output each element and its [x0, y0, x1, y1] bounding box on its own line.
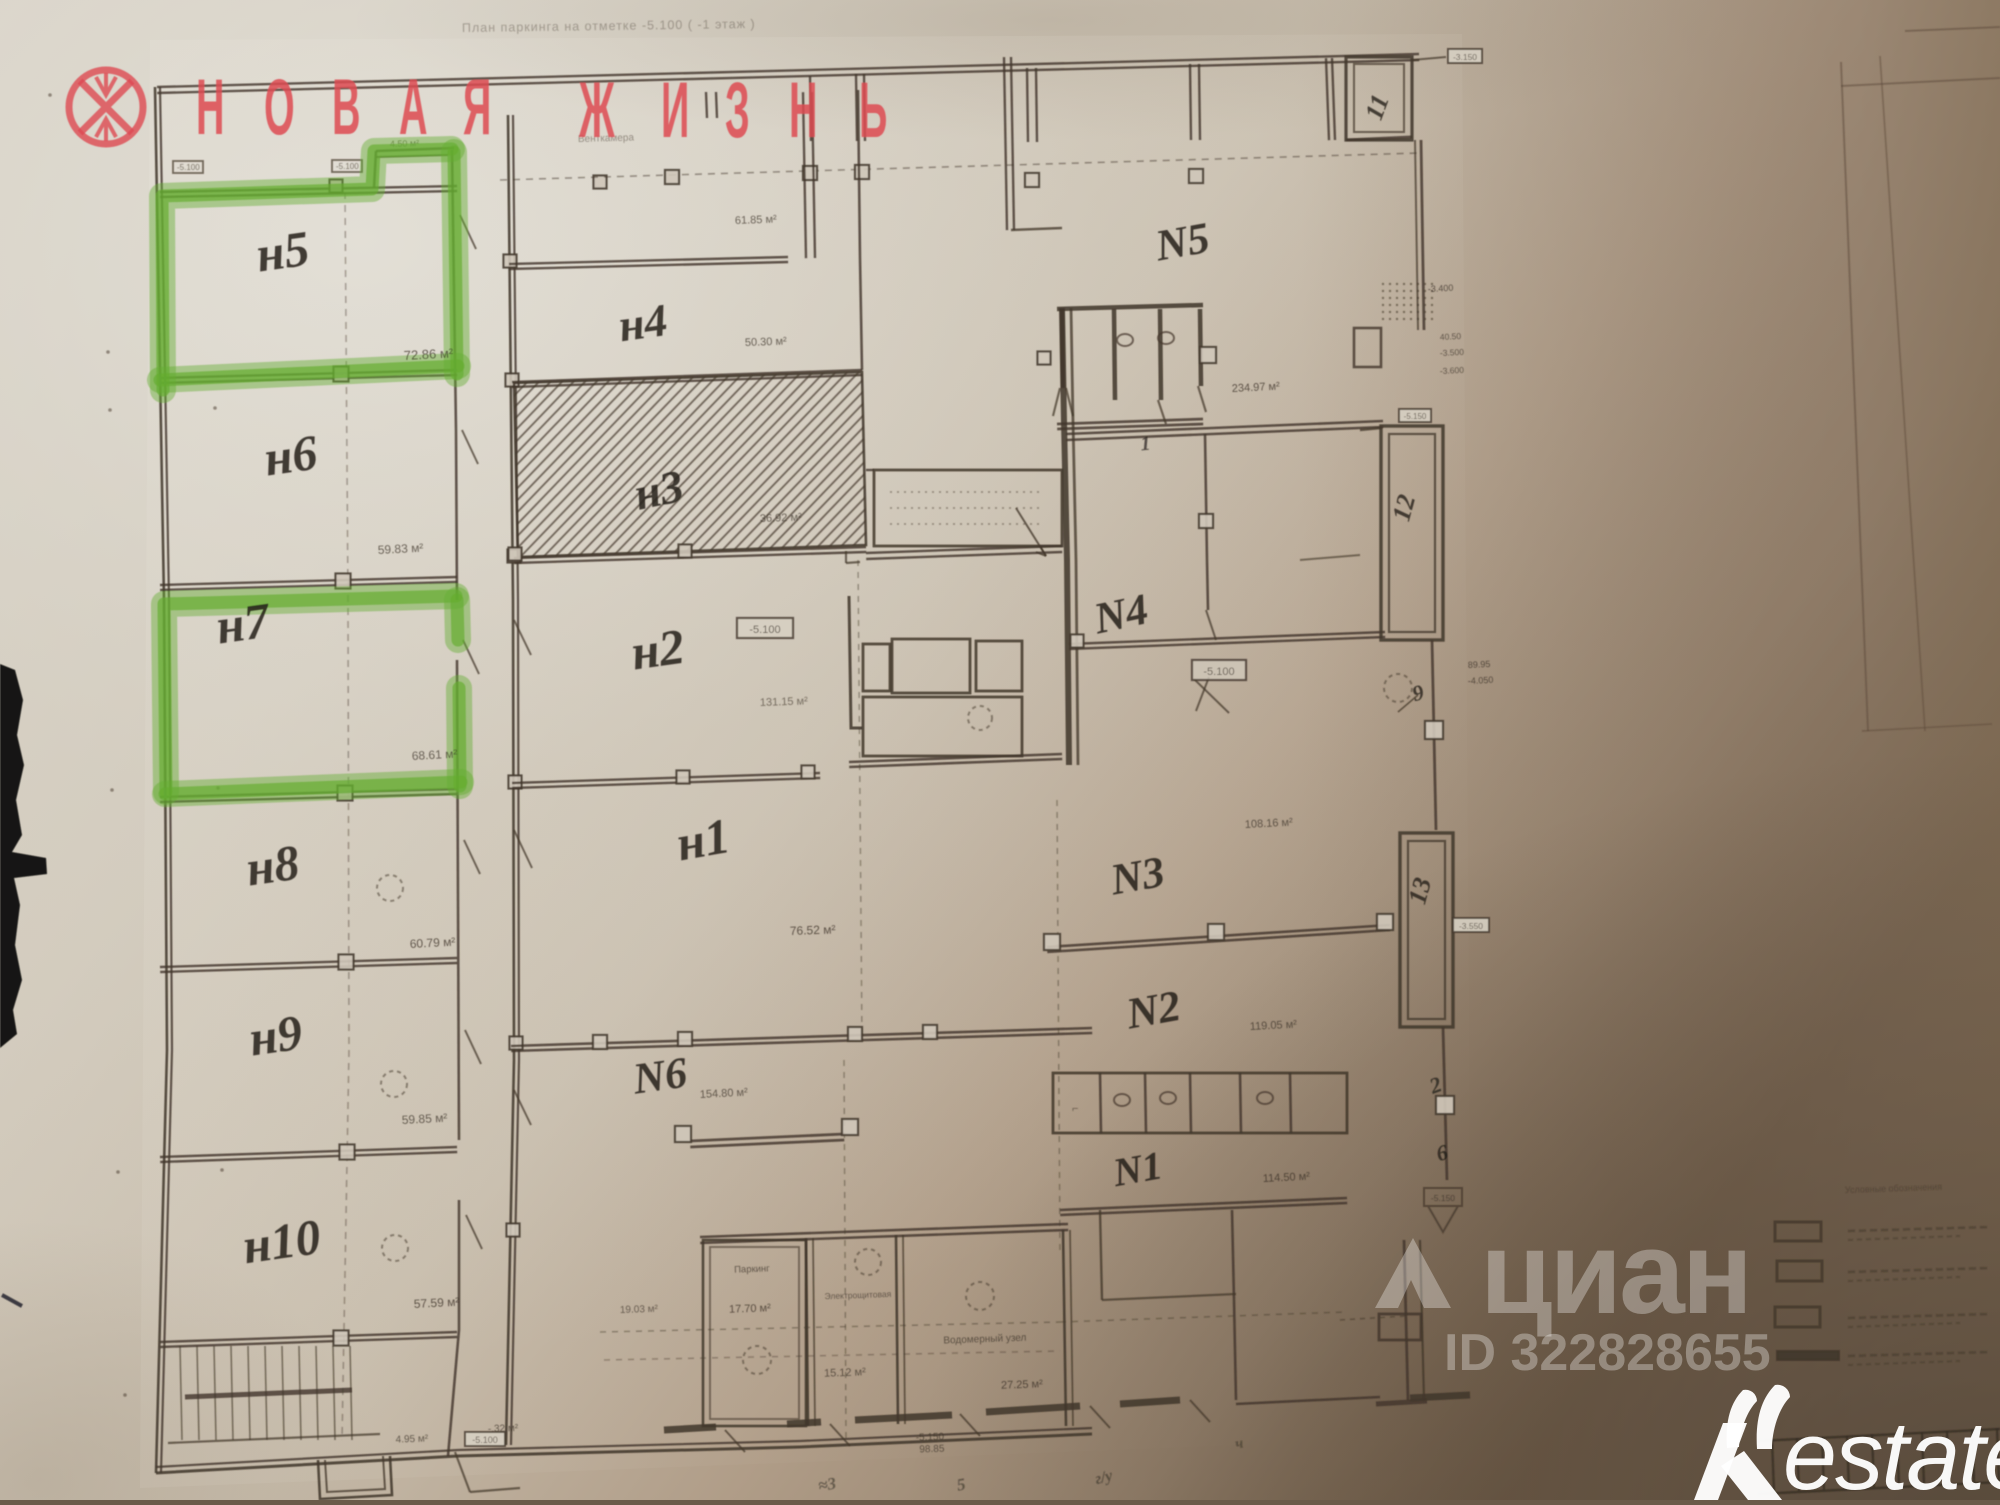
svg-text:60.79 м²: 60.79 м² [409, 935, 455, 951]
svg-text:15.12 м²: 15.12 м² [824, 1366, 867, 1379]
svg-text:108.16 м²: 108.16 м² [1245, 816, 1294, 831]
svg-text:68.61 м²: 68.61 м² [411, 747, 457, 763]
svg-text:-5.150: -5.150 [916, 1431, 945, 1443]
svg-text:н3: н3 [630, 460, 688, 520]
svg-text:-3.150: -3.150 [1453, 52, 1477, 62]
svg-text:154.80 м²: 154.80 м² [700, 1086, 749, 1101]
svg-text:N2: N2 [1122, 981, 1184, 1039]
svg-text:17.70 м²: 17.70 м² [729, 1302, 772, 1315]
svg-text:98.85: 98.85 [919, 1444, 945, 1456]
svg-text:57.59 м²: 57.59 м² [413, 1295, 459, 1311]
svg-text:131.15 м²: 131.15 м² [760, 695, 809, 709]
svg-text:estate: estate [1783, 1401, 2000, 1500]
svg-text:О: О [264, 63, 295, 152]
svg-text:З: З [725, 66, 750, 155]
svg-text:N6: N6 [629, 1048, 690, 1104]
svg-text:ID 322828655: ID 322828655 [1444, 1324, 1771, 1382]
svg-text:-5.100: -5.100 [336, 162, 359, 171]
svg-text:59.83 м²: 59.83 м² [377, 541, 423, 557]
svg-text:В: В [332, 63, 361, 152]
svg-text:72.86 м²: 72.86 м² [403, 345, 454, 363]
svg-text:36.92 м²: 36.92 м² [760, 512, 803, 525]
svg-text:-3.500: -3.500 [1440, 347, 1465, 358]
svg-text:н8: н8 [243, 834, 303, 897]
svg-text:-5.100: -5.100 [1203, 666, 1234, 678]
svg-text:19.03 м²: 19.03 м² [620, 1304, 659, 1316]
svg-text:119.05 м²: 119.05 м² [1250, 1019, 1298, 1033]
svg-text:N1: N1 [1109, 1142, 1166, 1195]
svg-text:-5.150: -5.150 [1404, 412, 1427, 421]
svg-text:-.32 м²: -.32 м² [488, 1423, 519, 1435]
svg-text:Ж: Ж [578, 66, 615, 155]
svg-text:н4: н4 [615, 294, 670, 351]
svg-text:-5.100: -5.100 [472, 1435, 498, 1445]
svg-text:76.52 м²: 76.52 м² [790, 922, 836, 938]
svg-text:89.95: 89.95 [1468, 659, 1491, 670]
svg-text:Н: Н [196, 63, 225, 152]
svg-text:1: 1 [1140, 433, 1152, 456]
svg-text:N5: N5 [1151, 213, 1213, 271]
svg-text:N3: N3 [1106, 847, 1168, 905]
svg-text:4.95 м²: 4.95 м² [396, 1433, 429, 1445]
svg-text:н6: н6 [261, 424, 321, 487]
svg-text:Я: Я [463, 63, 491, 152]
svg-text:⌐: ⌐ [1072, 1103, 1078, 1115]
svg-text:61.85 м²: 61.85 м² [735, 214, 778, 227]
svg-text:234.97 м²: 234.97 м² [1232, 380, 1281, 395]
svg-text:н9: н9 [246, 1004, 306, 1067]
svg-text:н2: н2 [628, 618, 688, 681]
svg-text:н5: н5 [253, 220, 313, 283]
svg-text:-5.100: -5.100 [749, 624, 780, 636]
svg-text:-5.100: -5.100 [177, 163, 200, 172]
svg-text:Ь: Ь [859, 66, 887, 155]
svg-text:-3.600: -3.600 [1440, 365, 1465, 376]
svg-text:50.30 м²: 50.30 м² [745, 336, 788, 349]
svg-text:-3.400: -3.400 [1428, 283, 1454, 294]
svg-text:114.50 м²: 114.50 м² [1263, 1171, 1311, 1185]
svg-text:А: А [399, 63, 428, 152]
svg-text:Н: Н [789, 66, 818, 155]
svg-text:-4.050: -4.050 [1468, 675, 1494, 686]
svg-text:59.85 м²: 59.85 м² [401, 1111, 447, 1127]
svg-text:-5.150: -5.150 [1431, 1193, 1455, 1203]
svg-text:27.25 м²: 27.25 м² [1001, 1378, 1044, 1391]
svg-text:циан: циан [1480, 1207, 1750, 1339]
svg-text:40.50: 40.50 [1440, 331, 1462, 342]
svg-text:-3.550: -3.550 [1459, 921, 1483, 931]
svg-text:И: И [661, 66, 689, 155]
svg-text:н7: н7 [213, 591, 275, 654]
svg-text:н1: н1 [672, 807, 734, 871]
svg-text:Паркинг: Паркинг [734, 1263, 770, 1275]
svg-text:н10: н10 [239, 1208, 324, 1274]
